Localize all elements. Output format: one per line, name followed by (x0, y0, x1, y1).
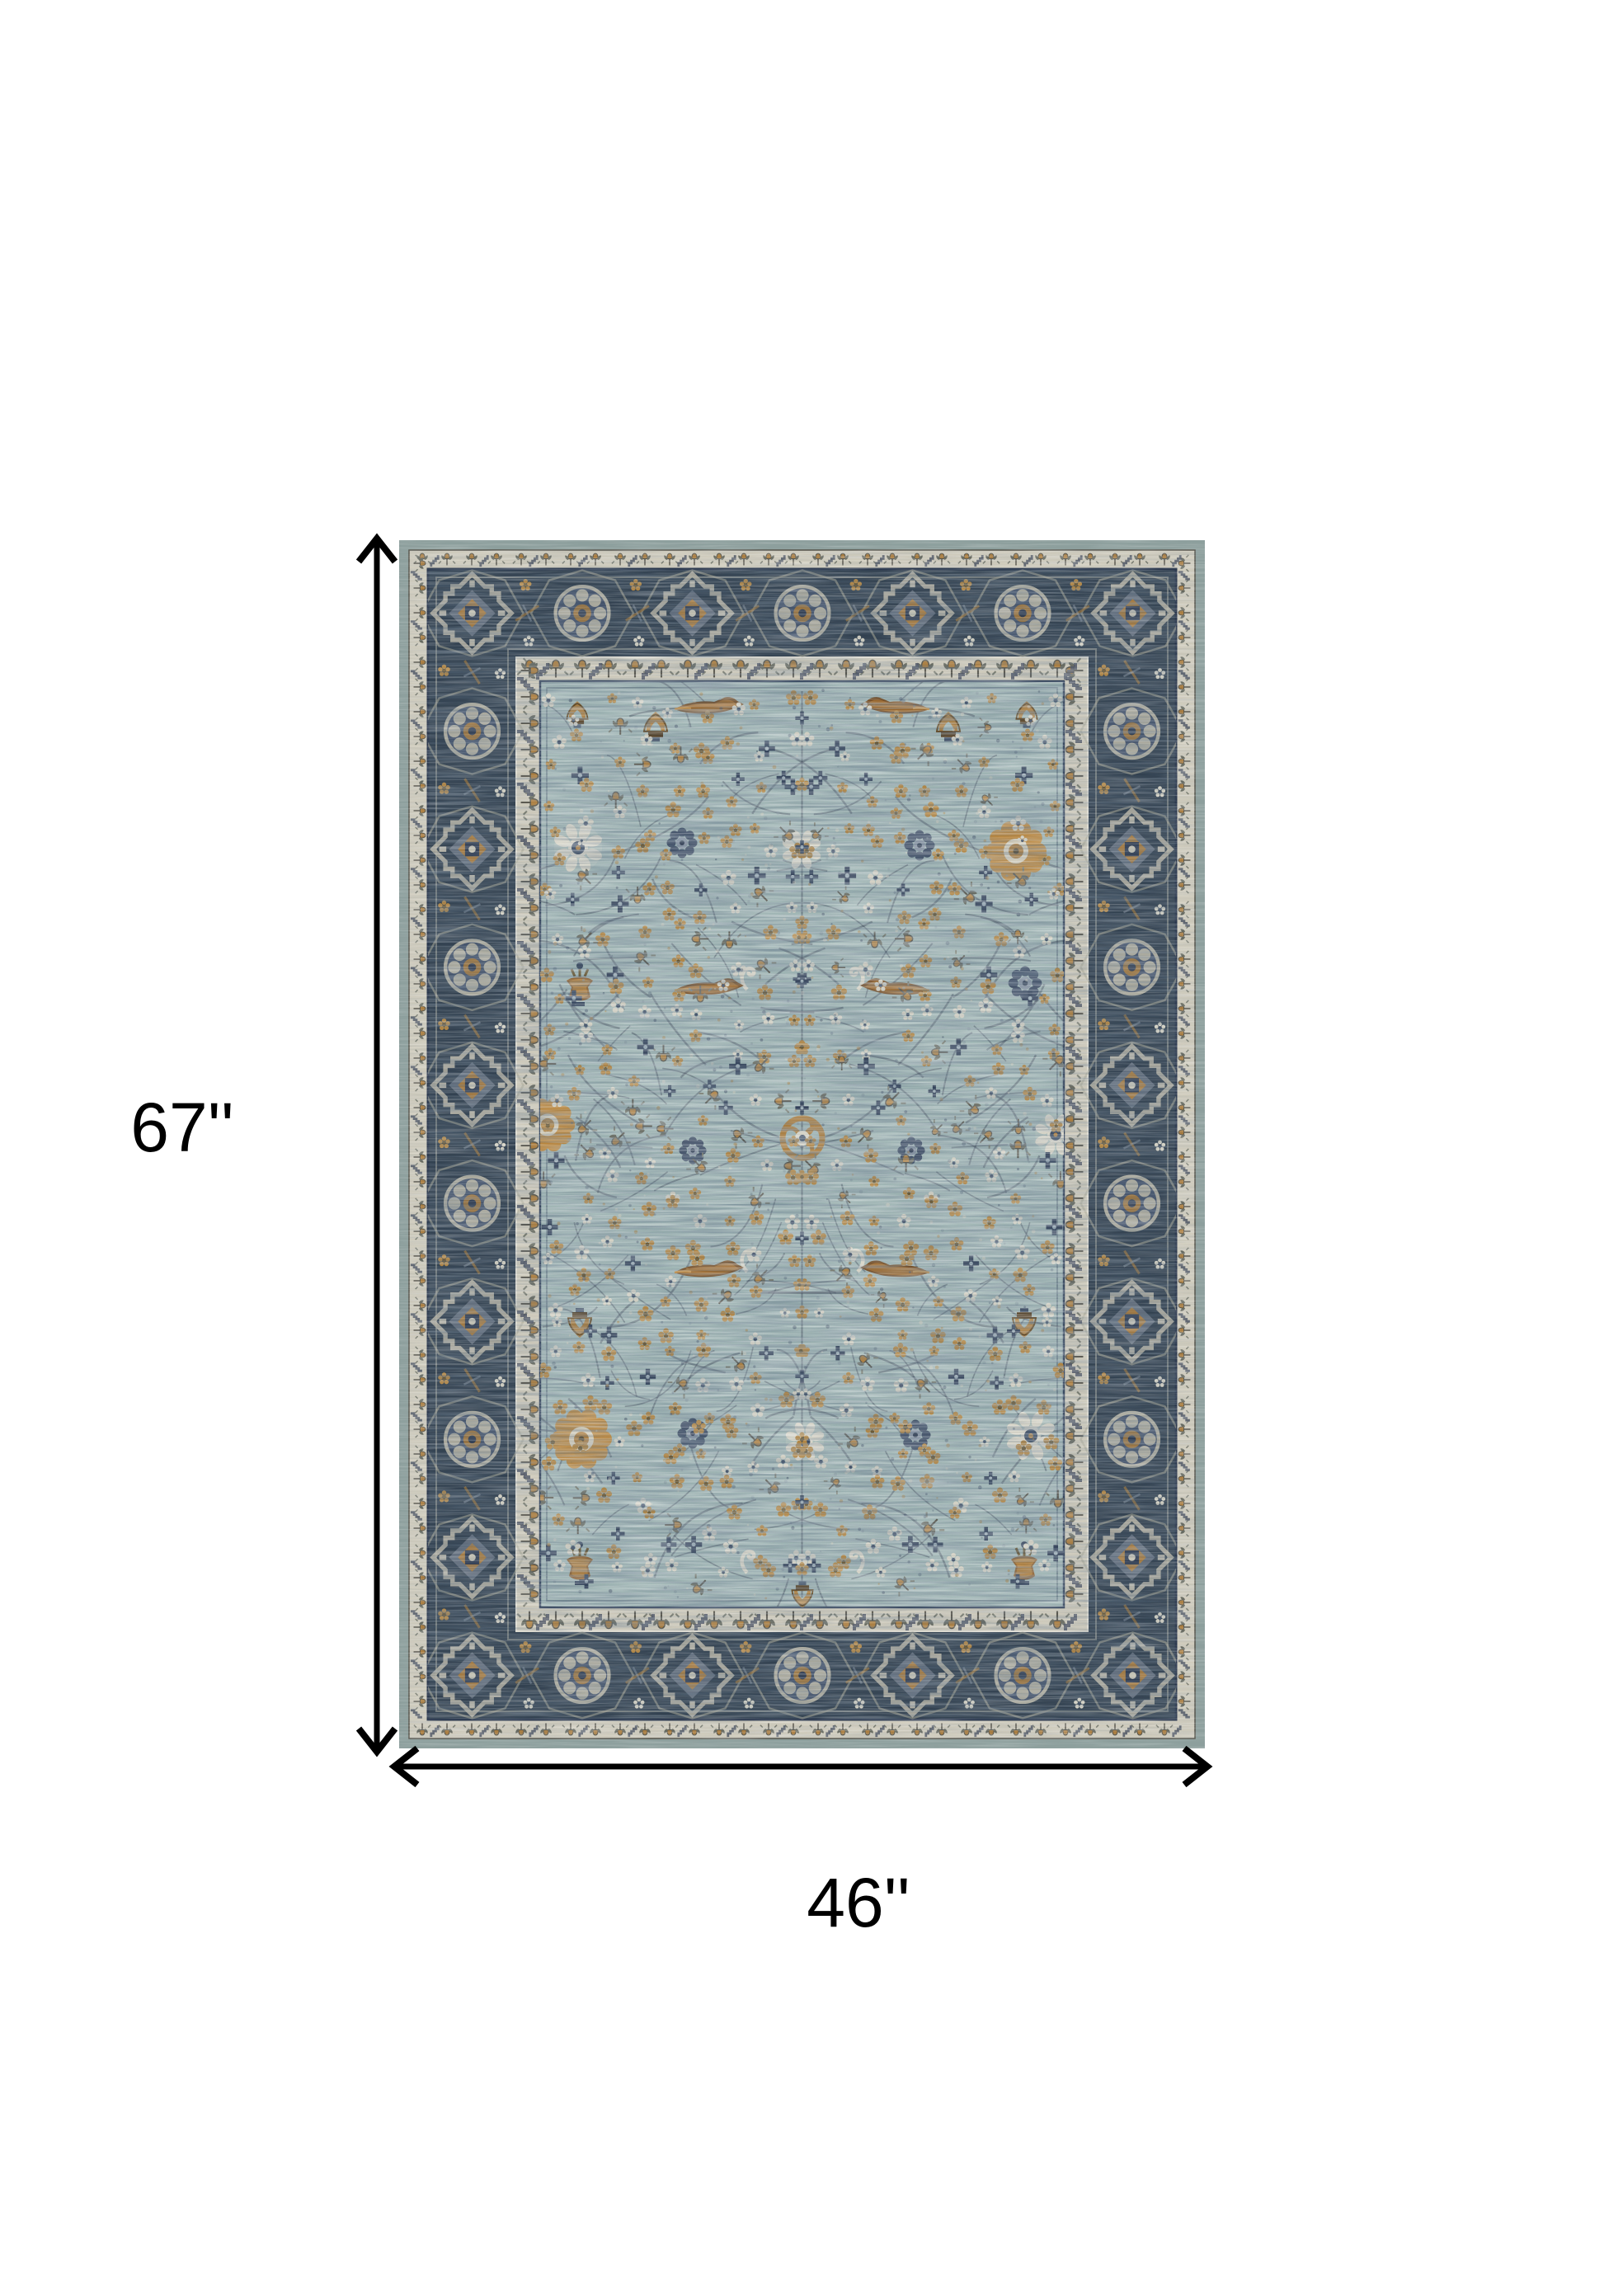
svg-text:67'': 67'' (130, 1089, 234, 1166)
svg-text:46'': 46'' (807, 1864, 910, 1941)
